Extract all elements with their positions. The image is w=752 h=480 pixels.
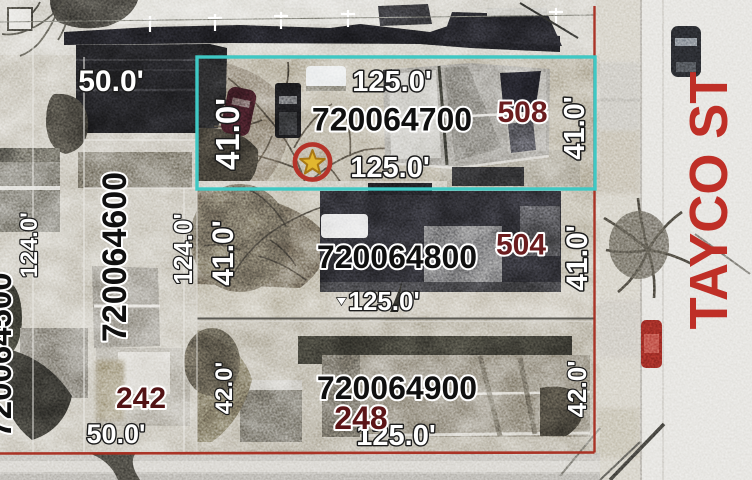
svg-text:125.0': 125.0' — [348, 286, 419, 316]
svg-text:50.0': 50.0' — [78, 65, 144, 98]
svg-text:41.0': 41.0' — [209, 98, 246, 170]
svg-text:720064800: 720064800 — [317, 239, 477, 275]
svg-text:124.0': 124.0' — [16, 212, 43, 278]
svg-text:42.0': 42.0' — [211, 362, 238, 414]
svg-text:125.0': 125.0' — [350, 152, 429, 184]
svg-text:41.0': 41.0' — [207, 220, 240, 286]
svg-text:248: 248 — [334, 400, 387, 436]
svg-text:242: 242 — [116, 382, 166, 415]
svg-text:720064600: 720064600 — [96, 172, 134, 342]
svg-text:720064700: 720064700 — [312, 102, 472, 138]
svg-text:50.0': 50.0' — [87, 419, 146, 449]
svg-text:TAYCO ST: TAYCO ST — [679, 71, 739, 329]
svg-text:125.0': 125.0' — [352, 66, 431, 98]
svg-text:42.0': 42.0' — [562, 361, 592, 418]
svg-text:504: 504 — [496, 229, 546, 262]
svg-text:41.0': 41.0' — [559, 96, 591, 159]
svg-text:41.0': 41.0' — [561, 225, 594, 291]
svg-text:124.0': 124.0' — [168, 213, 198, 284]
svg-text:720064500: 720064500 — [0, 272, 18, 437]
svg-text:508: 508 — [497, 96, 547, 129]
